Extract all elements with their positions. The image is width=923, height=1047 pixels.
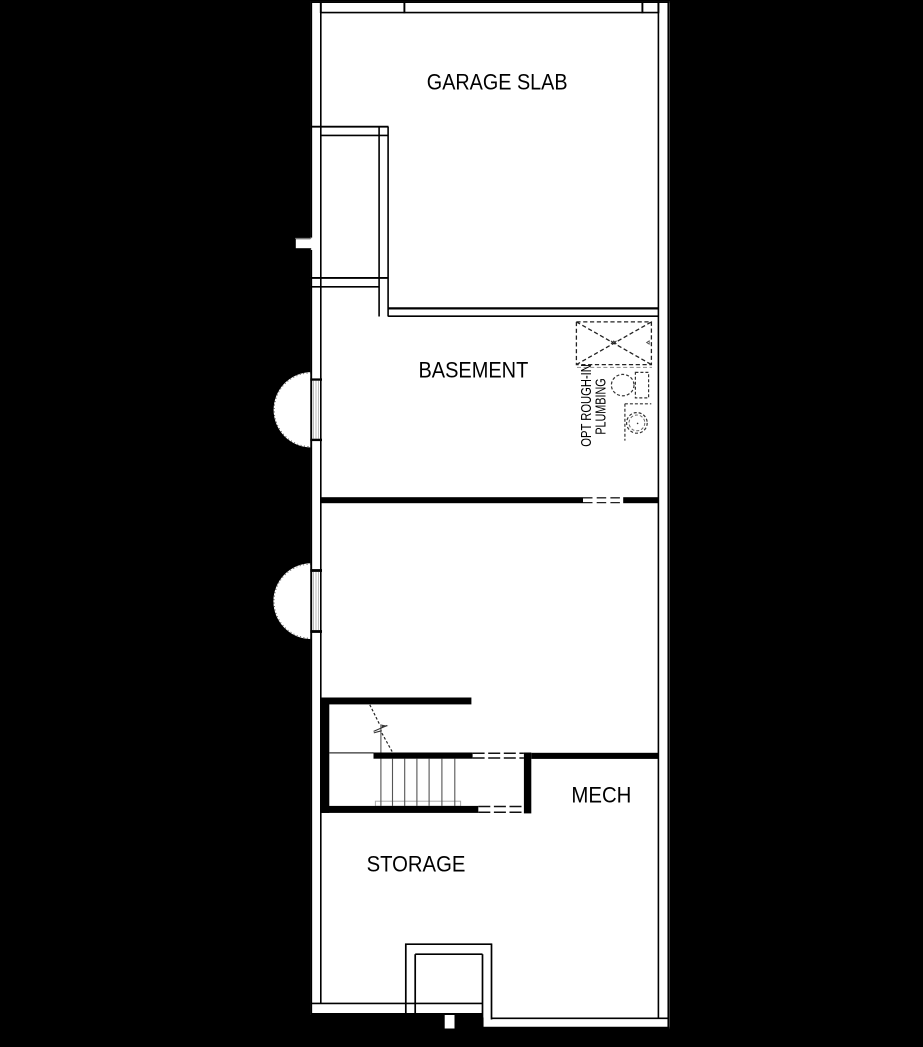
svg-text:STORAGE: STORAGE	[367, 852, 466, 877]
svg-text:BASEMENT: BASEMENT	[419, 357, 529, 382]
svg-text:PLUMBING: PLUMBING	[592, 378, 609, 434]
svg-text:GARAGE SLAB: GARAGE SLAB	[427, 70, 568, 95]
svg-text:MECH: MECH	[571, 782, 631, 807]
